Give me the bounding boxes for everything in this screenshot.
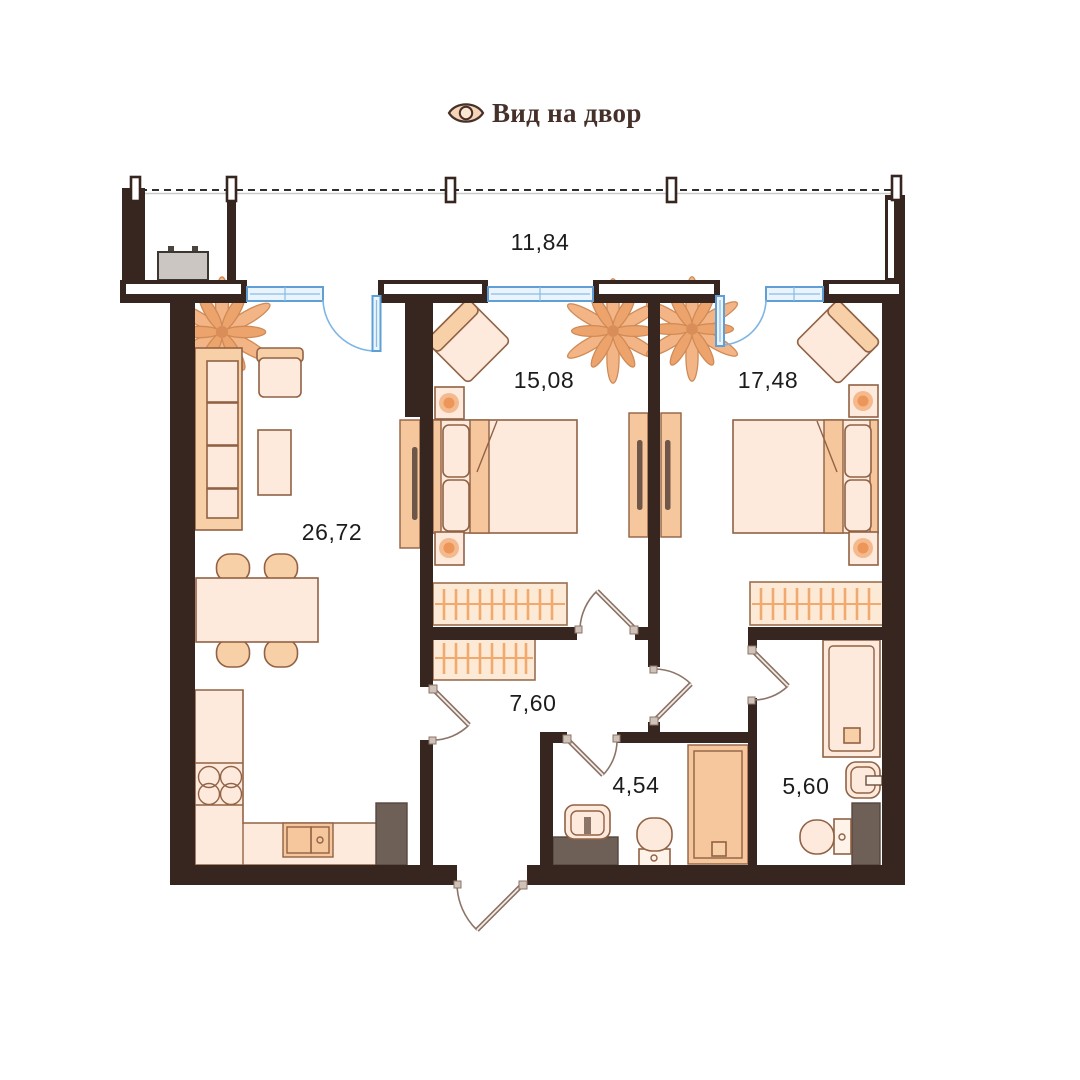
area-label-balcony: 11,84 — [511, 229, 570, 255]
door-bathroom-2 — [748, 646, 788, 704]
utility-cabinet — [852, 803, 880, 865]
interior-wall — [635, 627, 660, 640]
area-label-bedroom-2: 17,48 — [738, 367, 799, 393]
balcony-left-wall — [122, 188, 145, 285]
entrance-door — [454, 881, 527, 930]
bathtub — [823, 640, 880, 757]
area-label-bathroom-1: 4,54 — [612, 772, 659, 798]
sofa — [195, 348, 242, 530]
window — [488, 287, 593, 301]
door-vestibule — [650, 666, 691, 725]
bedroom-1-furniture — [426, 279, 662, 625]
door-hallway — [429, 685, 469, 744]
bedroom-2-furniture — [644, 277, 883, 625]
washbasin — [846, 762, 882, 798]
washbasin — [565, 805, 610, 839]
view-legend: Вид на двор — [449, 98, 642, 128]
interior-wall — [748, 627, 757, 648]
window — [766, 287, 823, 301]
area-label-bathroom-2: 5,60 — [782, 773, 829, 799]
door-bathroom-1 — [563, 735, 620, 775]
closet-rail — [433, 583, 567, 625]
interior-wall — [420, 627, 577, 640]
window — [247, 287, 323, 301]
nightstand — [435, 532, 464, 565]
closet-rail — [750, 582, 883, 625]
railing-post — [227, 177, 236, 201]
nightstand — [849, 385, 878, 417]
nightstand — [435, 387, 464, 419]
interior-wall — [617, 732, 757, 743]
toilet — [637, 818, 672, 866]
nightstand — [849, 532, 878, 565]
view-legend-label: Вид на двор — [492, 98, 642, 128]
railing-post — [446, 178, 455, 202]
right-wall — [882, 303, 905, 865]
coffee-table — [258, 430, 291, 495]
dining-table — [196, 578, 318, 642]
interior-wall — [748, 698, 757, 865]
windows — [247, 287, 823, 351]
area-label-living: 26,72 — [302, 519, 363, 545]
fridge — [376, 803, 407, 865]
railing-post — [131, 177, 140, 201]
floor-plan-canvas: 11,84 26,72 15,08 17,48 7,60 4,54 5,60 В… — [0, 0, 1080, 1080]
bottom-wall — [170, 865, 457, 885]
bathroom-2-fixtures — [800, 640, 882, 865]
wardrobe — [661, 413, 681, 537]
interior-wall — [648, 303, 660, 667]
eye-icon — [449, 104, 483, 121]
vanity-counter — [553, 837, 618, 865]
kitchen-sink — [283, 823, 333, 857]
interior-wall — [540, 743, 553, 865]
railing-post — [892, 176, 901, 200]
railing-post — [667, 178, 676, 202]
living-room-furniture — [171, 277, 420, 865]
bed — [433, 420, 577, 533]
wardrobe — [629, 413, 648, 537]
balcony-door — [716, 296, 766, 346]
balcony-partition-wall — [227, 188, 236, 285]
hallway-closet-rail — [433, 637, 535, 680]
bed — [733, 420, 878, 533]
area-label-bedroom-1: 15,08 — [514, 367, 575, 393]
balcony-right-wall-inset — [888, 200, 894, 278]
left-wall — [170, 303, 195, 865]
floor-plan-page: 11,84 26,72 15,08 17,48 7,60 4,54 5,60 В… — [0, 0, 1080, 1080]
armchair — [796, 300, 881, 385]
kitchen-counter — [195, 690, 377, 865]
armchair — [257, 348, 303, 397]
interior-wall — [420, 740, 433, 865]
interior-wall — [748, 627, 905, 640]
armchair — [426, 299, 511, 384]
bathroom-1-fixtures — [553, 745, 748, 866]
balcony-door — [323, 296, 381, 351]
toilet — [800, 819, 851, 854]
dining-chair — [265, 639, 298, 667]
living-wardrobe — [400, 420, 420, 548]
shower-column — [688, 745, 748, 864]
door-bedroom-1 — [575, 591, 638, 634]
area-label-hallway: 7,60 — [509, 690, 556, 716]
dining-chair — [217, 639, 250, 667]
bottom-wall — [527, 865, 905, 885]
